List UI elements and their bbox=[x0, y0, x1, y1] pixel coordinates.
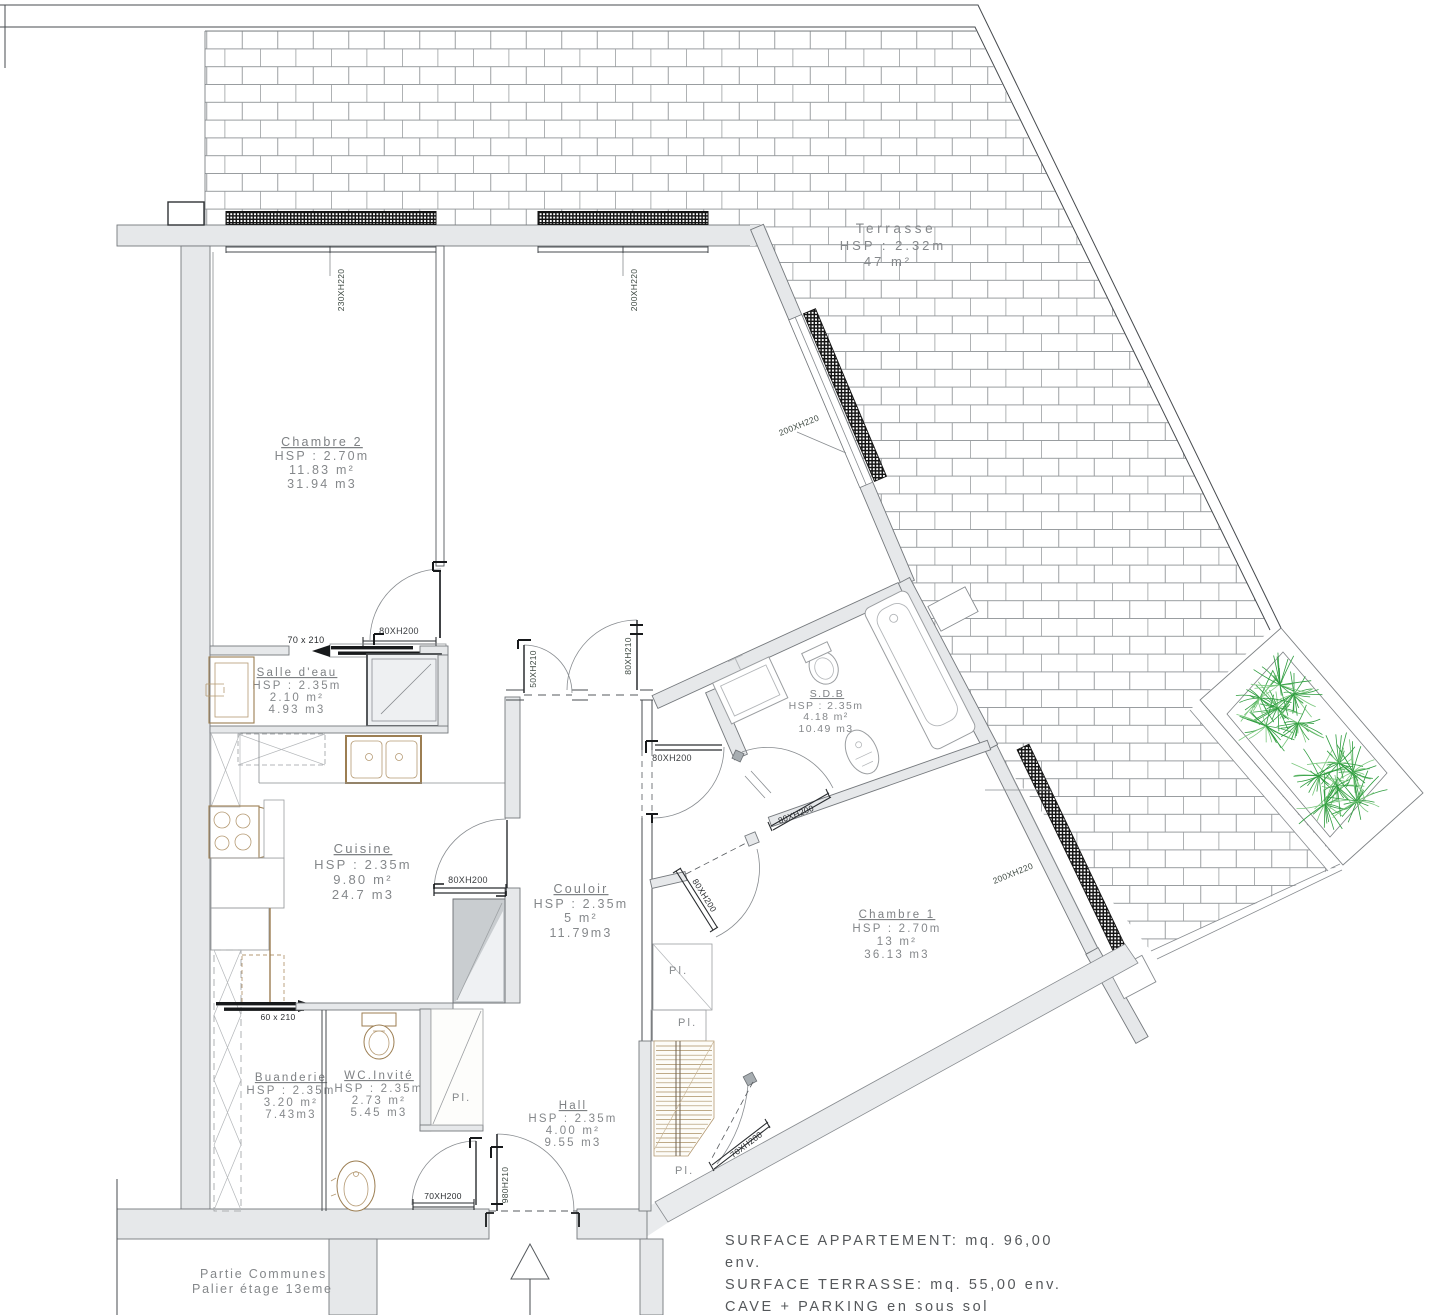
svg-text:11.79m3: 11.79m3 bbox=[549, 926, 612, 940]
svg-text:13 m²: 13 m² bbox=[877, 936, 917, 948]
svg-text:5 m²: 5 m² bbox=[564, 911, 598, 925]
svg-text:11.83 m²: 11.83 m² bbox=[289, 463, 355, 477]
svg-text:200XH220: 200XH220 bbox=[629, 269, 639, 312]
svg-text:31.94 m3: 31.94 m3 bbox=[287, 477, 357, 491]
svg-text:3.20 m²: 3.20 m² bbox=[264, 1097, 318, 1109]
svg-text:2.10 m²: 2.10 m² bbox=[270, 692, 324, 704]
svg-text:HSP : 2.35m: HSP : 2.35m bbox=[252, 680, 341, 692]
svg-text:Couloir: Couloir bbox=[554, 882, 609, 896]
svg-text:WC.Invité: WC.Invité bbox=[344, 1070, 414, 1082]
svg-text:SURFACE APPARTEMENT: mq. 96,00: SURFACE APPARTEMENT: mq. 96,00 bbox=[725, 1233, 1053, 1249]
svg-text:env.: env. bbox=[725, 1255, 762, 1271]
svg-text:4.00 m²: 4.00 m² bbox=[546, 1125, 600, 1137]
svg-text:HSP : 2.35m: HSP : 2.35m bbox=[528, 1113, 617, 1125]
svg-text:SURFACE TERRASSE: mq. 55,00 en: SURFACE TERRASSE: mq. 55,00 env. bbox=[725, 1277, 1062, 1293]
svg-text:9.80 m²: 9.80 m² bbox=[333, 872, 392, 887]
svg-text:47 m²: 47 m² bbox=[864, 254, 912, 269]
svg-text:70 x 210: 70 x 210 bbox=[288, 635, 325, 645]
svg-text:HSP : 2.35m: HSP : 2.35m bbox=[534, 897, 629, 911]
svg-text:80XH200: 80XH200 bbox=[652, 753, 692, 763]
svg-text:HSP : 2.70m: HSP : 2.70m bbox=[852, 923, 941, 935]
svg-text:980H210: 980H210 bbox=[500, 1167, 510, 1204]
svg-text:Hall: Hall bbox=[559, 1100, 588, 1112]
svg-text:Chambre 1: Chambre 1 bbox=[859, 909, 936, 921]
svg-text:Palier étage 13eme: Palier étage 13eme bbox=[192, 1282, 333, 1296]
svg-text:24.7 m3: 24.7 m3 bbox=[332, 887, 394, 902]
svg-text:36.13 m3: 36.13 m3 bbox=[864, 949, 930, 961]
svg-text:Pl.: Pl. bbox=[669, 965, 688, 977]
svg-text:4.18 m²: 4.18 m² bbox=[803, 711, 848, 723]
svg-text:5.45 m3: 5.45 m3 bbox=[351, 1107, 408, 1119]
svg-text:Partie Communes: Partie Communes bbox=[200, 1267, 327, 1281]
svg-text:Pl.: Pl. bbox=[452, 1092, 471, 1104]
svg-text:9.55 m3: 9.55 m3 bbox=[545, 1137, 602, 1149]
svg-text:80XH200: 80XH200 bbox=[448, 875, 488, 885]
svg-text:HSP : 2.32m: HSP : 2.32m bbox=[840, 238, 946, 253]
svg-text:4.93 m3: 4.93 m3 bbox=[269, 704, 326, 716]
svg-text:50XH210: 50XH210 bbox=[528, 650, 538, 688]
svg-text:7.43m3: 7.43m3 bbox=[265, 1109, 317, 1121]
svg-text:S.D.B: S.D.B bbox=[810, 688, 844, 700]
svg-text:Chambre 2: Chambre 2 bbox=[281, 435, 363, 449]
svg-text:Buanderie: Buanderie bbox=[255, 1072, 327, 1084]
svg-text:Salle d'eau: Salle d'eau bbox=[257, 667, 338, 679]
svg-text:10.49 m3: 10.49 m3 bbox=[799, 723, 854, 735]
svg-text:60 x 210: 60 x 210 bbox=[260, 1012, 295, 1022]
svg-text:CAVE + PARKING en sous sol: CAVE + PARKING en sous sol bbox=[725, 1299, 989, 1315]
svg-text:Pl.: Pl. bbox=[678, 1017, 697, 1029]
svg-text:2.73 m²: 2.73 m² bbox=[352, 1095, 406, 1107]
svg-text:230XH220: 230XH220 bbox=[336, 269, 346, 312]
svg-text:Terrasse: Terrasse bbox=[856, 221, 937, 236]
svg-text:80XH210: 80XH210 bbox=[623, 637, 633, 675]
svg-text:80XH200: 80XH200 bbox=[379, 626, 419, 636]
svg-text:70XH200: 70XH200 bbox=[424, 1191, 462, 1201]
svg-text:Pl.: Pl. bbox=[675, 1165, 694, 1177]
svg-text:HSP : 2.70m: HSP : 2.70m bbox=[275, 449, 370, 463]
svg-text:HSP : 2.35m: HSP : 2.35m bbox=[334, 1083, 423, 1095]
svg-text:Cuisine: Cuisine bbox=[334, 841, 393, 856]
svg-text:HSP : 2.35m: HSP : 2.35m bbox=[314, 857, 412, 872]
